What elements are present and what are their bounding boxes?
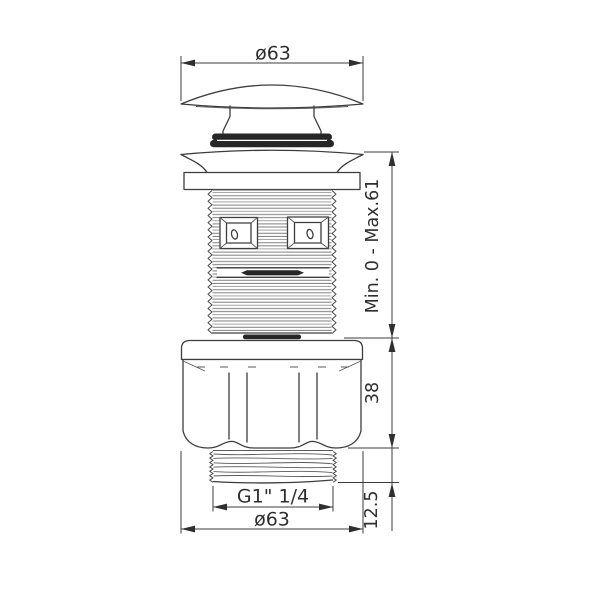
- o-ring-seal: [210, 134, 334, 148]
- overflow-slot: [217, 268, 329, 278]
- o-ring-upper: [212, 134, 332, 141]
- window-inner-frame: [295, 223, 322, 244]
- flange-neck-left: [181, 155, 207, 173]
- flange-top-edge: [181, 150, 363, 154]
- cap-stem-right: [314, 106, 321, 135]
- drain-valve-drawing: ø63: [0, 0, 600, 600]
- dim-label-height-range: Min. 0 - Max.61: [363, 179, 383, 314]
- dim-label-nut-height: 38: [363, 382, 383, 404]
- arrowhead-down: [389, 324, 396, 338]
- thread-line: [214, 463, 333, 464]
- arrowhead-up: [389, 152, 396, 166]
- bottom-thread: [210, 451, 337, 483]
- thread-profile-left: [208, 191, 212, 334]
- latch-bar: [241, 270, 304, 275]
- flange: [181, 150, 363, 172]
- mounting-washer: [184, 173, 360, 190]
- cap-dome: [181, 85, 363, 108]
- washer-plate: [184, 173, 360, 190]
- flange-neck-right: [337, 155, 363, 173]
- arrowhead-left: [181, 526, 195, 533]
- thread-line: [214, 467, 333, 468]
- hex-body: [183, 360, 361, 449]
- arrowhead-right: [349, 60, 363, 67]
- arrowhead-up: [389, 338, 396, 352]
- thread-hatching: [213, 190, 332, 333]
- arrowhead-left: [213, 504, 227, 511]
- overflow-window-left: [220, 218, 258, 249]
- thread-line: [214, 471, 333, 472]
- thread-bottom-edge: [214, 480, 333, 483]
- window-inner-frame: [227, 223, 252, 243]
- latch-bar: [243, 335, 301, 340]
- dim-label-thread-length: 12.5: [362, 491, 382, 530]
- thread-profile-right: [332, 191, 336, 334]
- technical-drawing-canvas: ø63: [0, 0, 600, 600]
- thread-line: [214, 454, 333, 455]
- arrowhead-left: [181, 60, 195, 67]
- dim-label-flange-diameter: ø63: [254, 509, 290, 531]
- thread-line: [214, 475, 333, 476]
- arrowhead-right: [319, 504, 333, 511]
- dim-label-thread-spec: G1" 1/4: [237, 486, 309, 508]
- arrowhead-down: [389, 434, 396, 448]
- upper-threaded-body: [208, 190, 336, 334]
- cap-stem-left: [223, 106, 230, 135]
- lower-latch-bar: [243, 335, 301, 340]
- arrowhead-right: [349, 526, 363, 533]
- push-cap: [181, 85, 363, 135]
- hex-outline: [183, 360, 361, 449]
- thread-line: [214, 458, 333, 459]
- overflow-window-right: [288, 217, 329, 249]
- nut-collar: [182, 341, 363, 360]
- thread-profile-left: [210, 452, 213, 483]
- dim-label-cap-diameter: ø63: [255, 43, 291, 65]
- thread-profile-right: [333, 452, 336, 483]
- arrowhead-up: [389, 483, 396, 497]
- collar-plate: [182, 341, 363, 360]
- o-ring-lower: [210, 140, 334, 147]
- thread-length-dimension: 12.5: [338, 483, 399, 530]
